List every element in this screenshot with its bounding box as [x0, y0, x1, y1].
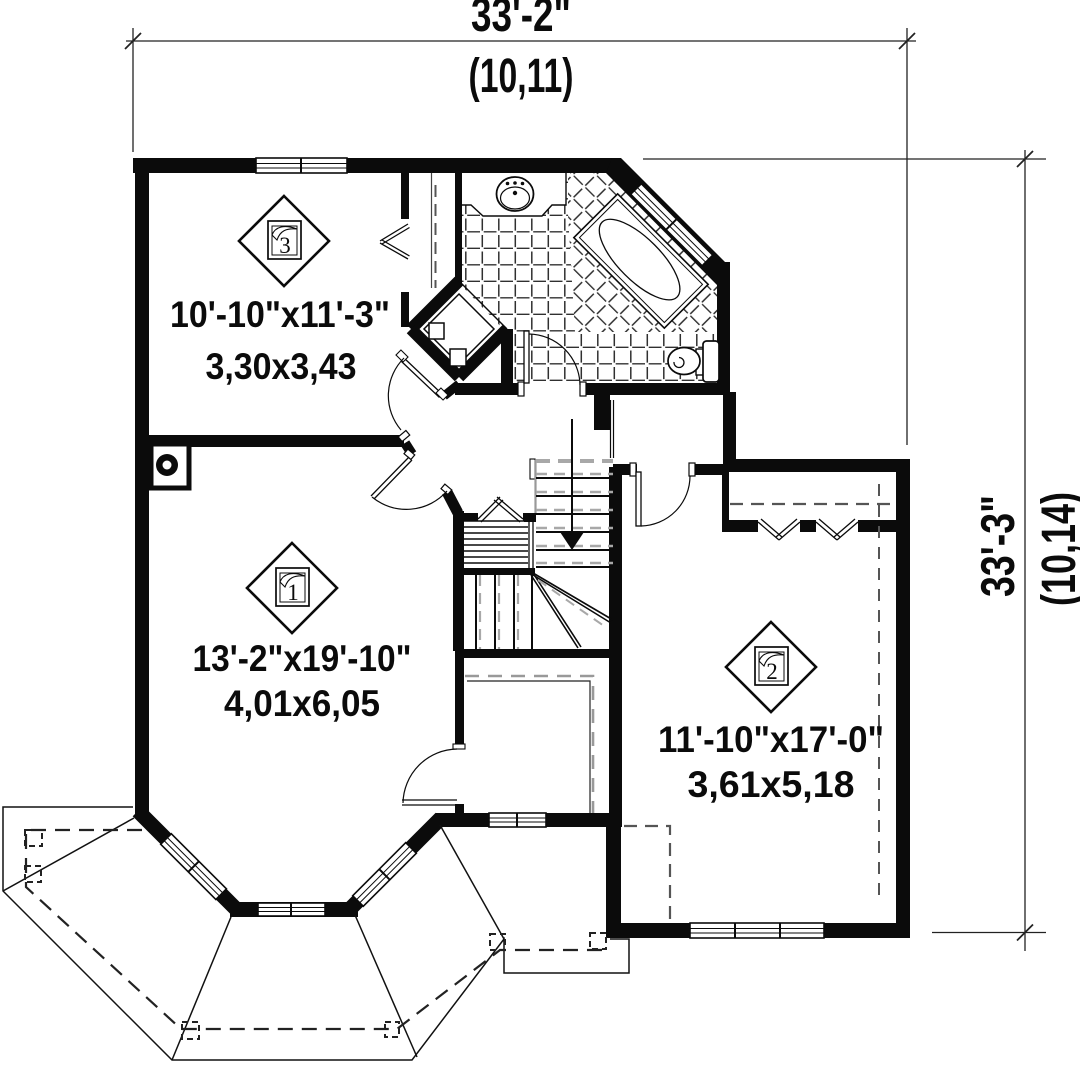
svg-text:3: 3 [279, 233, 291, 258]
svg-text:(10,11): (10,11) [469, 50, 574, 103]
svg-text:3,61x5,18: 3,61x5,18 [688, 764, 855, 805]
svg-text:11'-10"x17'-0": 11'-10"x17'-0" [658, 719, 884, 760]
svg-text:(10,14): (10,14) [1033, 492, 1080, 606]
svg-text:10'-10"x11'-3": 10'-10"x11'-3" [170, 294, 390, 335]
svg-text:33'-3": 33'-3" [971, 495, 1024, 597]
svg-text:13'-2"x19'-10": 13'-2"x19'-10" [193, 638, 412, 679]
svg-text:1: 1 [287, 580, 299, 605]
svg-text:2: 2 [766, 659, 778, 684]
svg-text:33'-2": 33'-2" [471, 0, 571, 42]
svg-text:3,30x3,43: 3,30x3,43 [206, 346, 357, 387]
svg-text:4,01x6,05: 4,01x6,05 [224, 683, 380, 724]
